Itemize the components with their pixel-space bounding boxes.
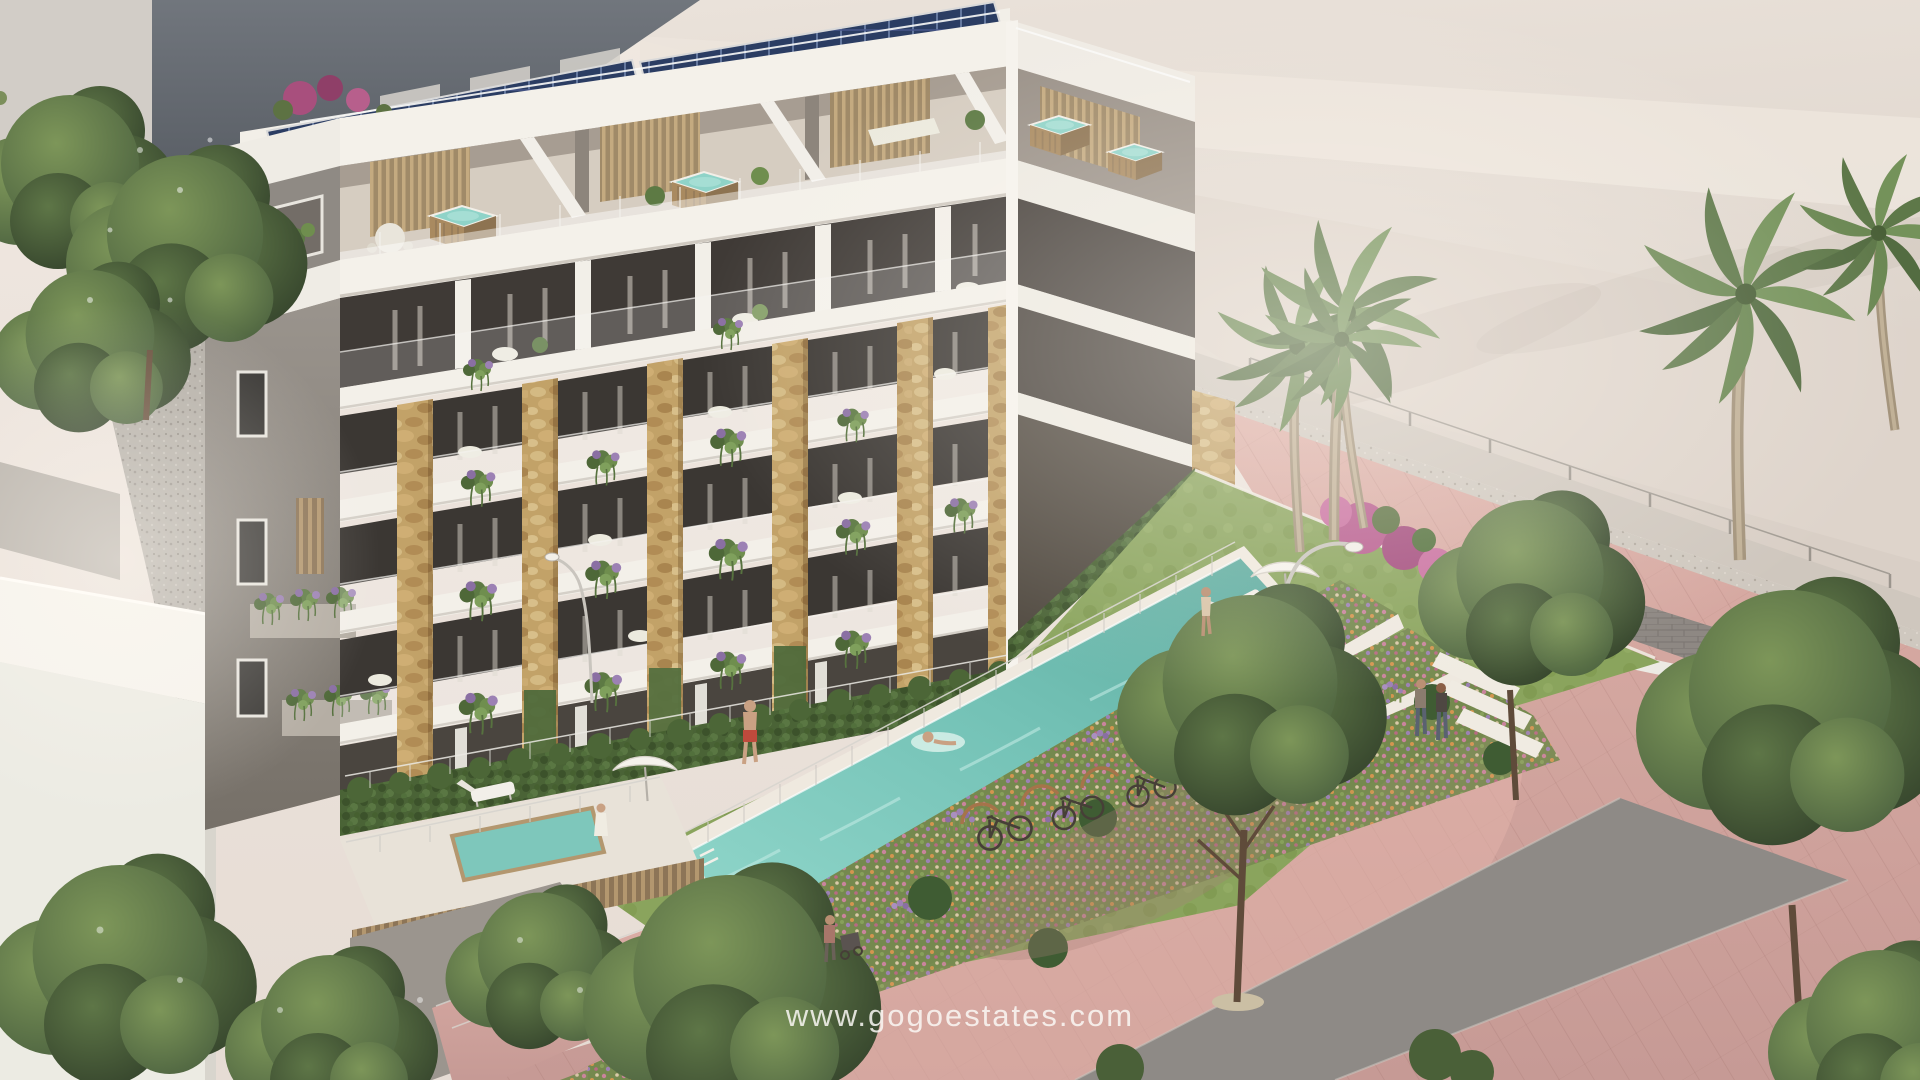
property-render-image: www.gogoestates.com [0, 0, 1920, 1080]
light-haze [700, 0, 1920, 700]
watermark-text: www.gogoestates.com [786, 998, 1134, 1034]
render-scene [0, 0, 1920, 1080]
